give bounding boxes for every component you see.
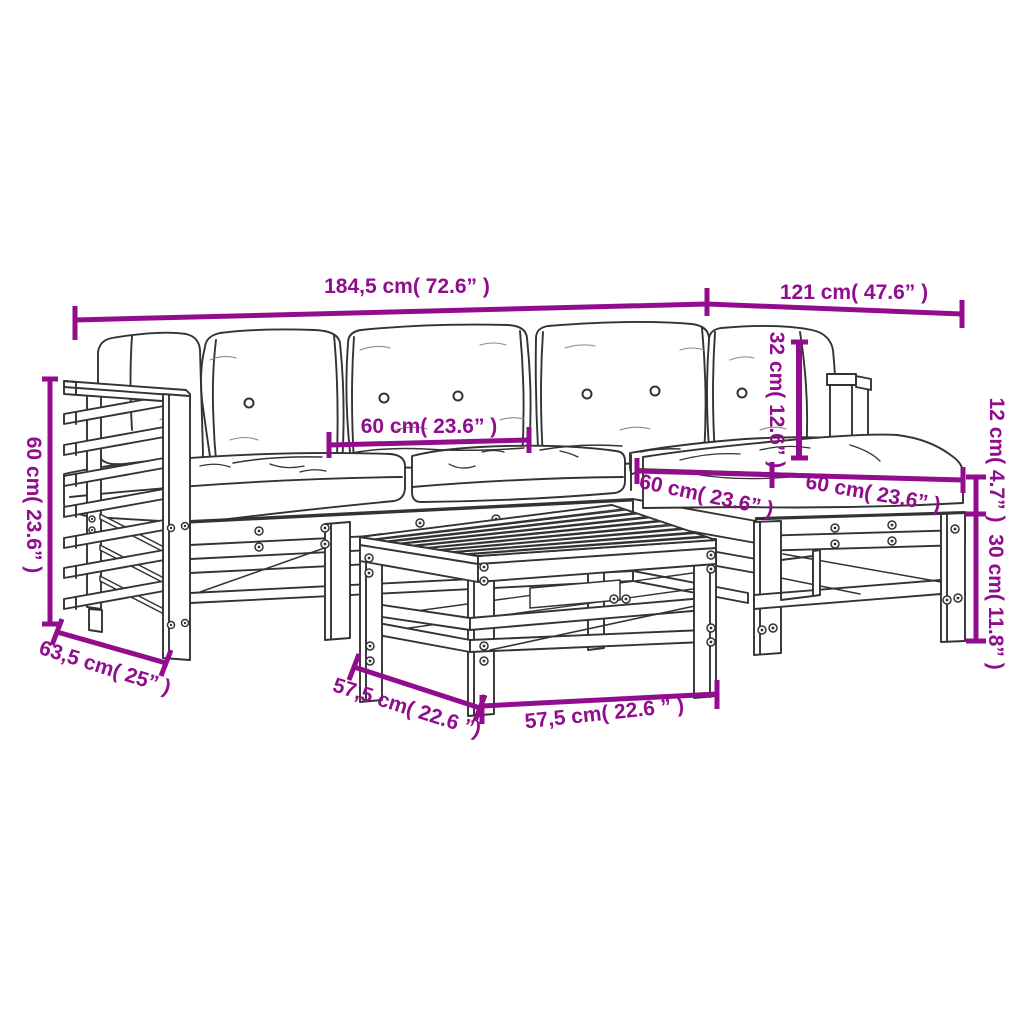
svg-text:30 cm( 11.8” ): 30 cm( 11.8” ) xyxy=(984,534,1007,669)
svg-text:12 cm( 4.7” ): 12 cm( 4.7” ) xyxy=(985,398,1008,523)
svg-text:184,5 cm( 72.6” ): 184,5 cm( 72.6” ) xyxy=(324,275,490,298)
svg-text:32 cm( 12.6” ): 32 cm( 12.6” ) xyxy=(765,332,788,469)
svg-text:121 cm( 47.6” ): 121 cm( 47.6” ) xyxy=(780,281,928,304)
svg-text:60 cm( 23.6” ): 60 cm( 23.6” ) xyxy=(22,437,45,574)
svg-text:60 cm( 23.6” ): 60 cm( 23.6” ) xyxy=(361,415,498,438)
